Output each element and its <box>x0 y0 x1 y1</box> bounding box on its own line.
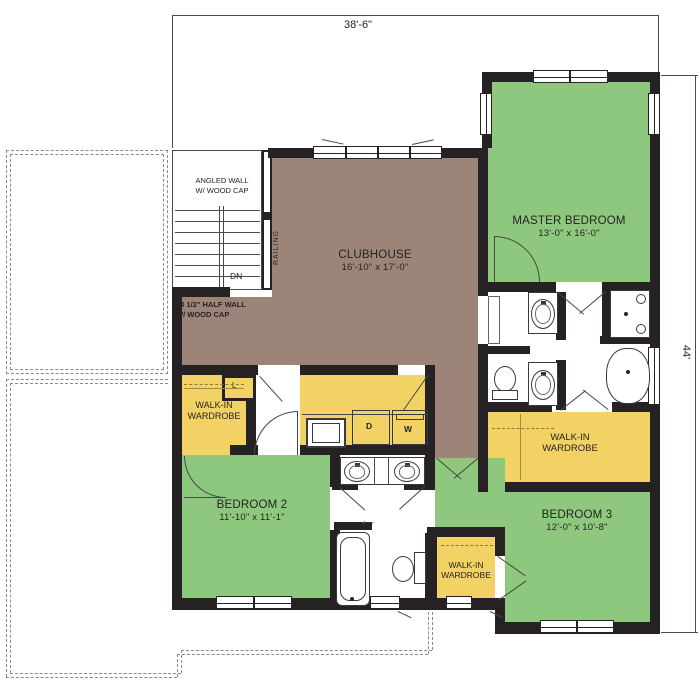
clubhouse-size: 16'-10" x 17'-0" <box>315 262 435 274</box>
roof-outline-seg <box>181 650 432 651</box>
bedroom3-wardrobe-label-2: WARDROBE <box>438 570 494 580</box>
master-wardrobe-label-1: WALK-IN <box>534 432 606 443</box>
bath-toilet-tank <box>414 552 426 584</box>
master-tub-faucet <box>626 370 630 374</box>
master-wardrobe-label-2: WARDROBE <box>534 443 606 454</box>
dim-right-line <box>695 75 696 632</box>
master-bedroom-door-leaf <box>494 236 495 282</box>
roof-outline-seg <box>6 379 7 677</box>
window-divider <box>345 146 347 159</box>
stair-stringer <box>219 206 220 290</box>
window-master-right <box>648 93 660 135</box>
angled-wall-note-2: W/ WOOD CAP <box>184 186 260 196</box>
railing-post <box>263 212 271 220</box>
window-divider <box>409 146 411 159</box>
dryer-label: D <box>366 421 372 431</box>
half-wall-note: 44 1/2" HALF WALL W/ WOOD CAP <box>176 300 271 320</box>
floor-plan: 38'-6" 44' <box>0 0 700 700</box>
wall-master-bedroom-south <box>482 282 556 292</box>
stair-tread <box>175 232 260 233</box>
window-bath-bottom-1 <box>370 596 400 609</box>
bedroom3-size: 12'-0" x 10'-8" <box>512 522 642 534</box>
wall-wardrobe3-west <box>427 537 437 598</box>
wardrobe-shelf-line <box>184 388 244 389</box>
bedroom2-size: 11'-10" x 11'-1" <box>187 512 317 524</box>
master-bedroom-size: 13'-0" x 16'-0" <box>494 228 644 240</box>
shower-drain <box>624 312 628 316</box>
window-bath-bottom-2 <box>446 596 472 609</box>
roof-outline-seg <box>6 677 177 678</box>
wall-spine <box>478 148 488 296</box>
bedroom3-wardrobe-label: WALK-IN WARDROBE <box>438 560 494 580</box>
half-wall-wood-cap <box>172 287 230 297</box>
window-divider <box>569 70 571 83</box>
stair-tread <box>175 221 260 222</box>
wall-row-top <box>300 365 398 375</box>
bath-tub-inner <box>340 537 366 601</box>
master-wardrobe-door-leaf <box>583 390 609 410</box>
railing-label: RAILING <box>272 230 281 265</box>
bedroom2-wardrobe-label-1: WALK-IN <box>185 400 243 411</box>
bedroom2-hall-door-leaf <box>297 411 298 455</box>
bedroom3-wardrobe-label-1: WALK-IN <box>438 560 494 570</box>
bath-west-door-leaf <box>339 487 365 510</box>
master-sink-2 <box>531 370 555 400</box>
stair-stringer <box>223 206 224 290</box>
wall-masterbath-seg <box>482 346 530 354</box>
master-bedroom-label: MASTER BEDROOM 13'-0" x 16'-0" <box>494 214 644 240</box>
bedroom2-wardrobe-label-2: WARDROBE <box>185 411 243 422</box>
clubhouse-name: CLUBHOUSE <box>315 248 435 262</box>
wardrobe-shelf-line <box>520 414 521 480</box>
window-sill-mark <box>398 611 412 618</box>
bedroom3-label: BEDROOM 3 12'-0" x 10'-8" <box>512 508 642 534</box>
half-wall-note-2: W/ WOOD CAP <box>176 310 271 320</box>
bath-vanity-divider <box>388 457 389 485</box>
stair-tread <box>175 276 260 277</box>
stairs-down-label: DN <box>230 271 242 281</box>
master-toilet-bowl <box>494 366 516 392</box>
roof-outline-seg <box>10 673 181 674</box>
wardrobe-rod-line <box>441 545 493 546</box>
direction-arrow: ← <box>358 513 403 528</box>
wall-left <box>172 290 182 610</box>
washer-detail <box>396 414 424 420</box>
window-divider <box>377 146 379 159</box>
dim-height-label: 44' <box>680 332 692 372</box>
bath-toilet-bowl <box>392 556 414 582</box>
clubhouse-label: CLUBHOUSE 16'-10" x 17'-0" <box>315 248 435 274</box>
hallway-floor <box>435 365 478 458</box>
bedroom3-name: BEDROOM 3 <box>512 508 642 522</box>
shower-head <box>636 324 646 334</box>
hall-closet-doors <box>488 296 500 344</box>
wardrobe-rod-line <box>184 384 244 385</box>
stair-tread <box>175 254 260 255</box>
bedroom2-label: BEDROOM 2 11'-10" x 11'-1" <box>187 498 317 524</box>
window-divider <box>253 596 255 609</box>
stair-tread <box>175 265 260 266</box>
wall-bedroom3-west <box>495 535 505 556</box>
roof-outline-seg <box>177 654 428 655</box>
window-trim-mark <box>322 139 344 145</box>
master-toilet-base <box>492 390 518 400</box>
washer-label: W <box>404 424 412 434</box>
angled-wall-note-1: ANGLED WALL <box>184 176 260 186</box>
bedroom2-hall-door-arc <box>254 411 298 455</box>
angled-wall-note: ANGLED WALL W/ WOOD CAP <box>184 176 260 196</box>
dim-top-line <box>173 15 658 16</box>
bedroom2-wardrobe-label: WALK-IN WARDROBE <box>185 400 243 422</box>
master-tub <box>606 348 650 404</box>
utility-sink-inner <box>312 423 340 443</box>
wardrobe-rod-line <box>492 428 554 429</box>
bedroom2-name: BEDROOM 2 <box>187 498 317 512</box>
stair-tread <box>175 243 260 244</box>
window-trim-mark <box>412 139 434 145</box>
dim-width-label: 38'-6" <box>318 19 398 31</box>
wall-spine <box>478 412 488 492</box>
window-divider <box>576 620 578 633</box>
bath-vanity-divider <box>374 457 375 485</box>
master-sink-1 <box>531 299 555 329</box>
bath-sink-left <box>344 461 370 482</box>
stairwell <box>172 150 262 290</box>
dim-top-ext-left <box>172 15 173 148</box>
roof-outline-seg <box>432 612 433 650</box>
wall-row-top <box>172 365 258 375</box>
bedroom3-entry-floor <box>435 458 505 535</box>
roof-outline-seg <box>6 379 168 380</box>
master-bedroom-name: MASTER BEDROOM <box>494 214 644 228</box>
half-wall-note-1: 44 1/2" HALF WALL <box>176 300 271 310</box>
dim-right-tick-top <box>661 75 698 76</box>
stair-railing-strip <box>262 150 272 290</box>
wall-wardrobe-bedroom3 <box>505 482 650 492</box>
stair-tread <box>175 210 260 211</box>
bath-tub-faucet <box>350 597 354 601</box>
roof-outline-box-inner <box>10 154 164 370</box>
roof-outline-seg <box>428 612 429 654</box>
wall-wardrobe3-north <box>427 527 505 537</box>
dim-top-ext-right <box>658 15 659 72</box>
dim-right-tick-bottom <box>661 632 698 633</box>
linen-closet-door-leaf <box>259 376 282 402</box>
shower-head <box>636 294 646 304</box>
roof-outline-seg <box>10 383 11 673</box>
roof-outline-seg <box>10 383 168 384</box>
window-master-left <box>480 93 492 135</box>
bath-sink-right <box>394 461 420 482</box>
roof-outline-seg <box>177 654 178 677</box>
master-wardrobe-label: WALK-IN WARDROBE <box>534 432 606 455</box>
